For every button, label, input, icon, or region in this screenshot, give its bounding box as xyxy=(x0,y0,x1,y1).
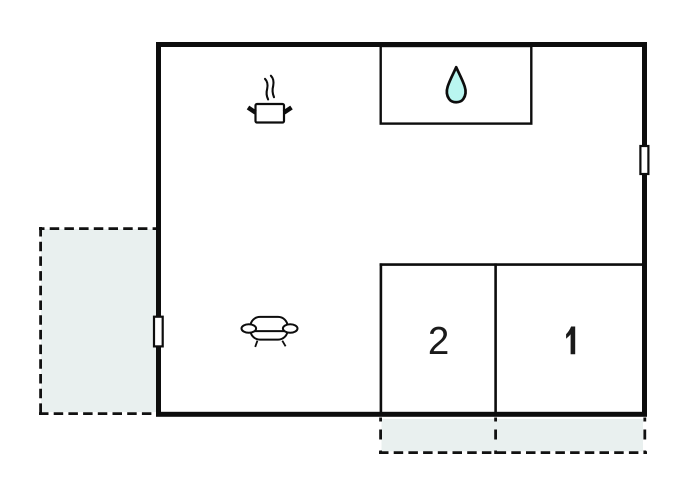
svg-text:2: 2 xyxy=(428,320,449,363)
